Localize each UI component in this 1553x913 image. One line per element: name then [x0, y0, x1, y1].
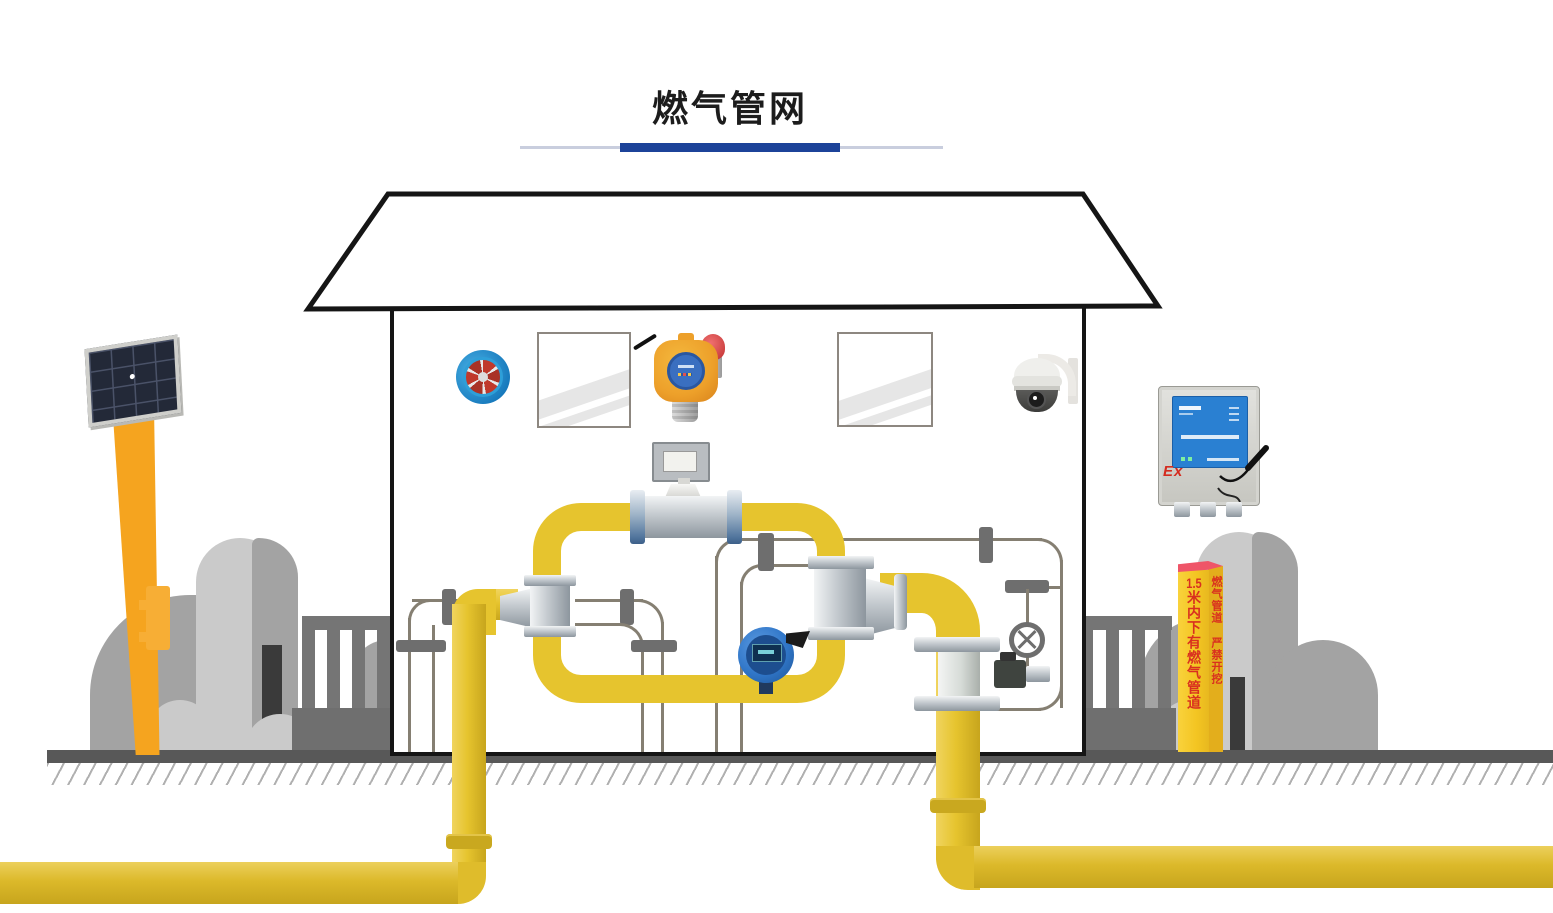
- fence-base: [1076, 708, 1176, 752]
- pipe-coupling: [979, 527, 993, 563]
- tree-trunk: [1230, 677, 1245, 752]
- tee-flange: [808, 556, 874, 569]
- panel-terminal: [1188, 457, 1192, 461]
- bush: [1268, 640, 1378, 752]
- tee-flange: [524, 626, 576, 637]
- fence-post: [377, 630, 390, 710]
- underground-gas-pipe: [974, 846, 1553, 888]
- flow-meter-body: [636, 496, 740, 538]
- lens-glint: [1033, 396, 1037, 400]
- tee-branch-ring: [894, 574, 907, 630]
- flow-meter-display: [652, 442, 710, 482]
- fence-post: [327, 630, 340, 710]
- panel-indicator: [1229, 407, 1239, 409]
- pipe-joint: [930, 798, 986, 813]
- antenna-icon: [1212, 432, 1276, 502]
- panel-sparkle: [130, 374, 135, 380]
- panel-brand-sub: [1179, 413, 1193, 415]
- fence-rail: [302, 616, 390, 630]
- transmitter-screen: [752, 644, 782, 662]
- pole-sign: [146, 586, 170, 650]
- fence-post: [1106, 630, 1119, 710]
- thin-pipe: [408, 618, 411, 752]
- underground-gas-pipe: [0, 862, 458, 904]
- pole-sign-tab: [139, 632, 148, 642]
- detector-face-dots: [678, 373, 692, 376]
- detector-face-line: [678, 365, 694, 368]
- panel-indicator: [1229, 413, 1239, 415]
- post-side-face: 燃气管道 严禁开挖: [1208, 566, 1223, 752]
- tee-flange: [808, 627, 874, 640]
- valve-body: [938, 652, 980, 698]
- gas-pipe-riser: [452, 604, 486, 866]
- tee-flange: [524, 575, 576, 586]
- post-front-face: 1.5米内下有燃气管道: [1178, 570, 1209, 752]
- ex-marking: Ex: [1163, 463, 1183, 480]
- fan-hub: [478, 372, 488, 382]
- page-title: 燃气管网: [430, 80, 1030, 132]
- fence-base: [292, 708, 392, 752]
- window: [537, 332, 631, 428]
- post-front-chars: 米内下有燃气管道: [1186, 590, 1202, 710]
- cable-gland: [1200, 502, 1216, 517]
- tee-body: [530, 586, 570, 626]
- camera-lens: [1027, 390, 1046, 409]
- post-front-text: 1.5米内下有燃气管道: [1185, 576, 1202, 748]
- flow-meter-flange: [630, 490, 645, 544]
- flow-meter-flange: [727, 490, 742, 544]
- fence-post: [1158, 630, 1171, 710]
- fence-post: [302, 630, 315, 710]
- pipe-coupling: [396, 640, 446, 652]
- pole-sign-tab: [139, 600, 148, 610]
- title-underline-accent: [620, 143, 840, 152]
- panel-brand-mark: [1179, 406, 1201, 410]
- valve-stem: [1026, 666, 1050, 682]
- cable-gland: [1226, 502, 1242, 517]
- valve-actuator: [994, 660, 1026, 688]
- fence-post: [1132, 630, 1145, 710]
- post-front-number: 1.5: [1186, 576, 1202, 590]
- pipe-joint: [446, 834, 492, 849]
- pole: [0, 0, 1, 1]
- panel-indicator: [1229, 419, 1239, 421]
- gas-pipeline-network-diagram: 燃气管网: [0, 0, 1553, 913]
- panel-terminal: [1181, 457, 1185, 461]
- post-side-text: 燃气管道 严禁开挖: [1209, 576, 1223, 748]
- valve-actuator-cap: [1000, 652, 1016, 661]
- screen-digits: [758, 650, 774, 654]
- cable-gland: [1174, 502, 1190, 517]
- station-house-roof: [280, 180, 1180, 320]
- detector-face: [667, 352, 705, 390]
- window: [837, 332, 933, 427]
- flow-meter-screen: [663, 451, 697, 472]
- fence-post: [352, 630, 365, 710]
- solar-panel-icon: [85, 334, 182, 427]
- ground-hatch: [47, 763, 1553, 785]
- valve-flange: [914, 637, 1000, 652]
- tee-body: [814, 569, 866, 627]
- valve-flange: [914, 696, 1000, 711]
- fence-rail: [1080, 616, 1172, 630]
